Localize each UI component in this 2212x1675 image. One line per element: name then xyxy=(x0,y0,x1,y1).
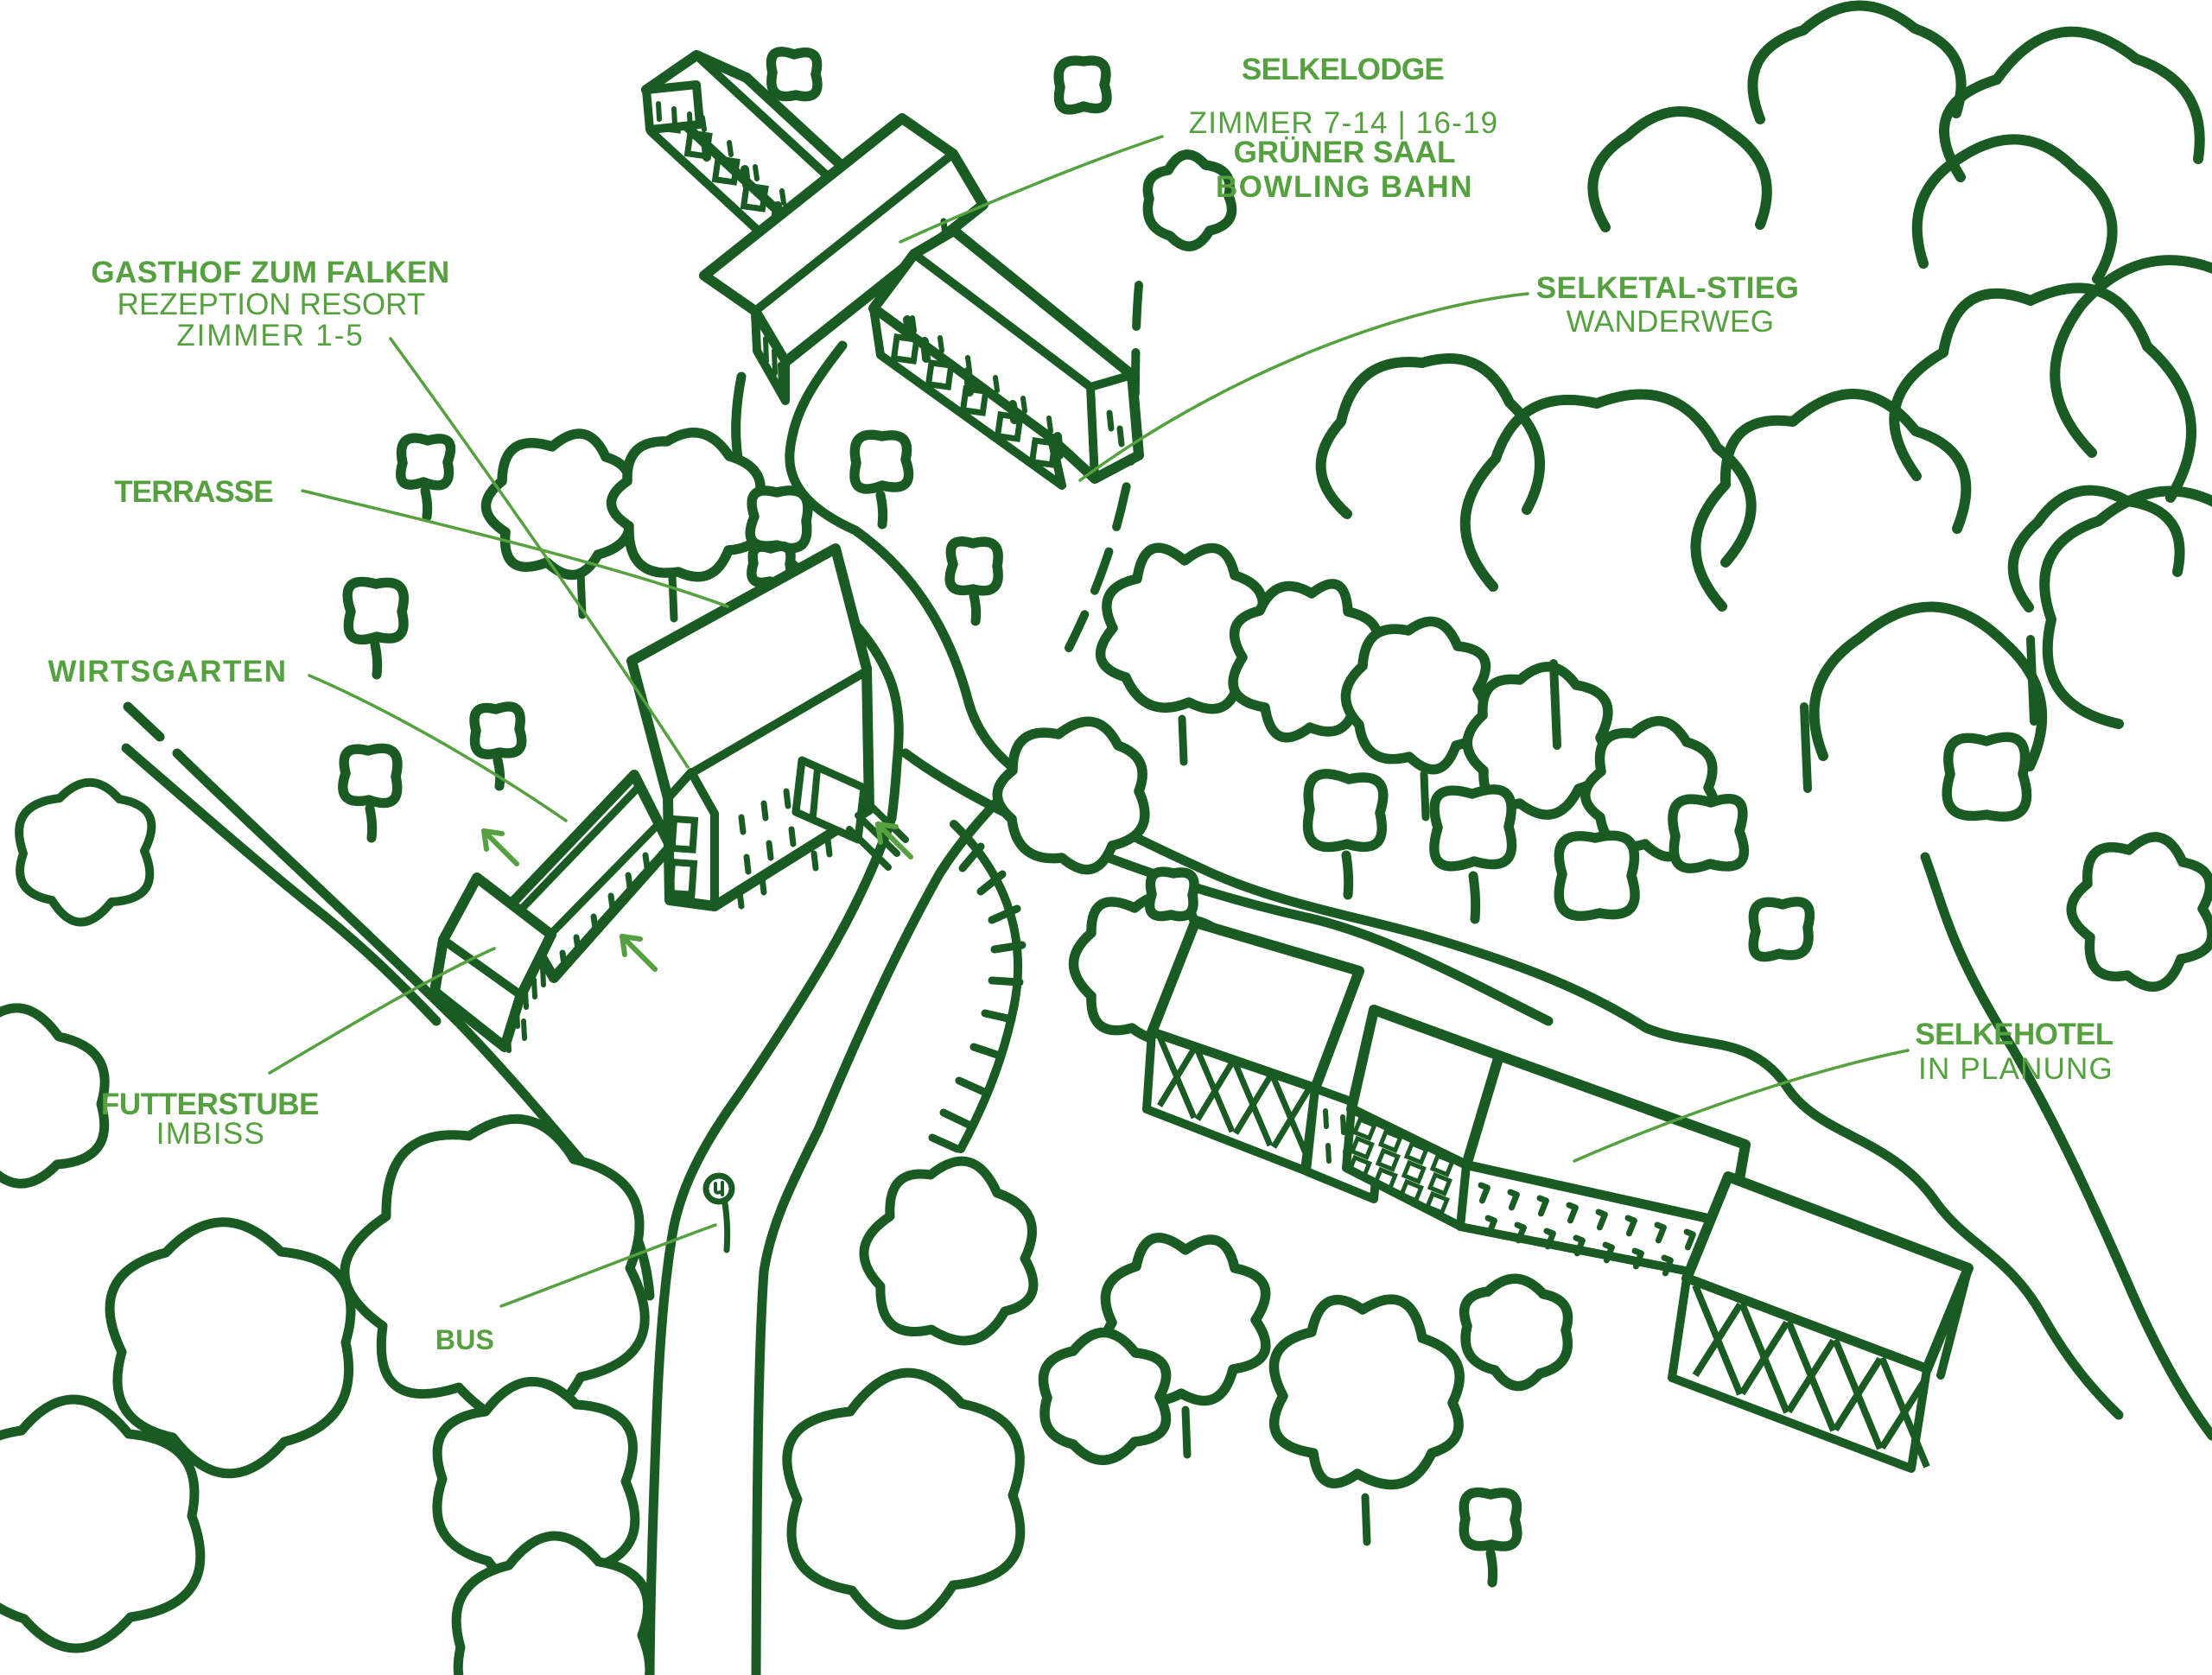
svg-text:ZIMMER 1-5: ZIMMER 1-5 xyxy=(176,319,364,352)
svg-text:GASTHOF ZUM FALKEN: GASTHOF ZUM FALKEN xyxy=(91,256,449,289)
svg-text:IN PLANUNG: IN PLANUNG xyxy=(1918,1052,2113,1086)
svg-text:WANDERWEG: WANDERWEG xyxy=(1567,305,1775,339)
svg-text:TERRASSE: TERRASSE xyxy=(114,475,272,509)
svg-text:BUS: BUS xyxy=(435,1324,494,1355)
svg-text:BOWLING BAHN: BOWLING BAHN xyxy=(1216,170,1473,204)
svg-text:IMBISS: IMBISS xyxy=(156,1117,265,1151)
svg-text:SELKELODGE: SELKELODGE xyxy=(1242,53,1444,86)
svg-text:SELKETAL-STIEG: SELKETAL-STIEG xyxy=(1536,271,1799,305)
svg-text:WIRTSGARTEN: WIRTSGARTEN xyxy=(48,655,287,688)
svg-text:REZEPTION RESORT: REZEPTION RESORT xyxy=(118,288,426,321)
svg-text:SELKEHOTEL: SELKEHOTEL xyxy=(1915,1018,2113,1051)
svg-text:GRÜNER SAAL: GRÜNER SAAL xyxy=(1234,136,1456,169)
